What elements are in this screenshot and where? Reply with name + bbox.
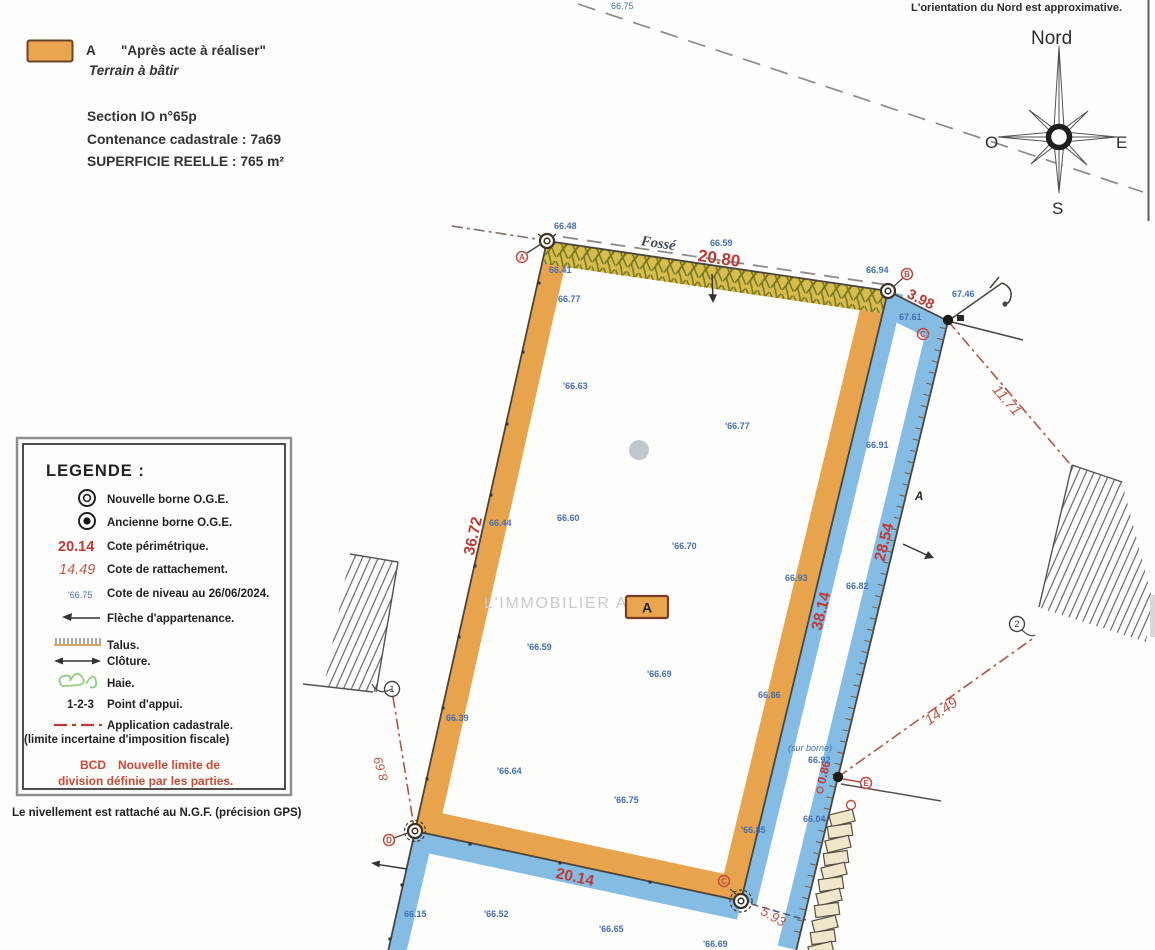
svg-text:66.82: 66.82 <box>846 581 869 591</box>
svg-text:'66.63: '66.63 <box>563 381 588 391</box>
svg-text:A: A <box>519 253 525 262</box>
svg-text:66.41: 66.41 <box>549 265 572 275</box>
svg-text:Nouvelle borne O.G.E.: Nouvelle borne O.G.E. <box>107 494 228 506</box>
svg-text:A: A <box>642 600 652 616</box>
svg-text:A: A <box>86 43 96 58</box>
svg-text:SUPERFICIE REELLE : 765 m²: SUPERFICIE REELLE : 765 m² <box>87 154 284 169</box>
svg-text:66.77: 66.77 <box>558 294 581 304</box>
svg-text:66.86: 66.86 <box>758 690 781 700</box>
svg-text:S: S <box>1052 199 1063 218</box>
svg-text:20.14: 20.14 <box>58 539 94 555</box>
svg-text:'66.65: '66.65 <box>599 924 624 934</box>
svg-text:L'orientation du Nord est appr: L'orientation du Nord est approximative. <box>911 2 1122 14</box>
svg-text:14.49: 14.49 <box>59 562 95 578</box>
svg-text:'66.59: '66.59 <box>527 642 552 652</box>
svg-text:66.59: 66.59 <box>710 238 733 248</box>
svg-text:66.39: 66.39 <box>446 713 469 723</box>
svg-text:'66.85: '66.85 <box>741 825 766 835</box>
svg-text:1-2-3: 1-2-3 <box>67 699 94 711</box>
svg-text:A: A <box>914 491 923 503</box>
svg-text:66.94: 66.94 <box>866 265 889 275</box>
svg-text:Talus.: Talus. <box>107 640 139 652</box>
svg-text:Le nivellement est rattaché au: Le nivellement est rattaché au N.G.F. (p… <box>12 807 302 819</box>
svg-text:E: E <box>1116 133 1127 152</box>
svg-text:'66.77: '66.77 <box>725 421 750 431</box>
svg-text:Flèche d'appartenance.: Flèche d'appartenance. <box>107 613 234 625</box>
svg-text:'66.70: '66.70 <box>672 541 697 551</box>
svg-text:66.15: 66.15 <box>404 909 427 919</box>
svg-text:BCD: BCD <box>80 758 106 772</box>
svg-text:Ancienne borne O.G.E.: Ancienne borne O.G.E. <box>107 517 232 529</box>
svg-text:'66.69: '66.69 <box>647 669 672 679</box>
svg-text:Cote de niveau au 26/06/2024.: Cote de niveau au 26/06/2024. <box>107 588 269 600</box>
svg-text:Point d'appui.: Point d'appui. <box>107 699 183 711</box>
svg-text:E: E <box>863 779 869 788</box>
svg-text:66.44: 66.44 <box>489 518 512 528</box>
svg-text:division définie par les parti: division définie par les parties. <box>58 774 233 788</box>
svg-text:66.93: 66.93 <box>785 573 808 583</box>
svg-text:B: B <box>904 270 910 279</box>
svg-text:'66.64: '66.64 <box>497 766 522 776</box>
svg-text:Nouvelle limite de: Nouvelle limite de <box>118 758 220 772</box>
svg-text:Application cadastrale.: Application cadastrale. <box>107 720 233 732</box>
svg-text:Cote de rattachement.: Cote de rattachement. <box>107 564 228 576</box>
svg-text:Contenance cadastrale : 7a69: Contenance cadastrale : 7a69 <box>87 132 281 147</box>
svg-text:Nord: Nord <box>1031 28 1072 49</box>
svg-text:66.92: 66.92 <box>808 755 831 765</box>
svg-text:Cote périmétrique.: Cote périmétrique. <box>107 541 209 553</box>
svg-text:67.46: 67.46 <box>952 289 975 299</box>
svg-text:Haie.: Haie. <box>107 678 135 690</box>
svg-text:'66.75: '66.75 <box>68 590 92 600</box>
svg-text:(limite incertaine d'impositio: (limite incertaine d'imposition fiscale) <box>24 734 229 746</box>
svg-text:Terrain à bâtir: Terrain à bâtir <box>89 63 179 78</box>
svg-text:66.91: 66.91 <box>866 440 889 450</box>
svg-text:66.04: 66.04 <box>803 814 826 824</box>
svg-text:66.60: 66.60 <box>557 513 580 523</box>
svg-text:C: C <box>721 877 727 886</box>
svg-text:"Après acte à réaliser": "Après acte à réaliser" <box>121 43 266 58</box>
svg-text:C: C <box>920 330 926 339</box>
svg-text:(sur borne): (sur borne) <box>788 743 832 753</box>
svg-text:D: D <box>386 836 392 845</box>
svg-text:Clôture.: Clôture. <box>107 656 150 668</box>
svg-text:'66.52: '66.52 <box>484 909 509 919</box>
svg-text:2: 2 <box>1014 619 1019 629</box>
svg-text:'66.69: '66.69 <box>703 939 728 949</box>
svg-text:O: O <box>985 133 998 152</box>
svg-text:66.48: 66.48 <box>554 221 577 231</box>
svg-text:67.61: 67.61 <box>899 312 922 322</box>
svg-text:LEGENDE :: LEGENDE : <box>46 462 145 480</box>
svg-text:Section IO n°65p: Section IO n°65p <box>87 109 197 124</box>
svg-text:'66.75: '66.75 <box>614 795 639 805</box>
svg-text:66.75: 66.75 <box>611 1 634 11</box>
